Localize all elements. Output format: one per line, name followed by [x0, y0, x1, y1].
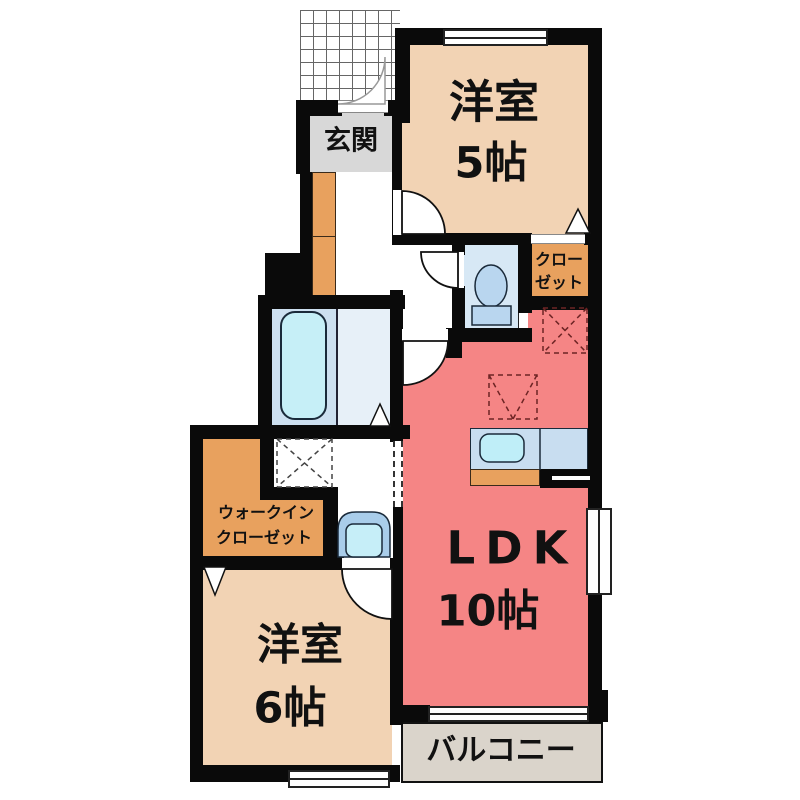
wall — [530, 296, 602, 310]
kitchen-cabinet — [470, 469, 540, 486]
balcony-label: バルコニー — [426, 736, 575, 766]
closet-label-line1: クロー — [535, 252, 583, 268]
bedroom5-size-label: 5帖 — [455, 143, 528, 186]
bedroom5-door-gap — [393, 190, 402, 235]
genkan-label: 玄関 — [324, 128, 378, 155]
wall — [390, 290, 403, 442]
bedroom6-door-gap — [342, 558, 390, 570]
bathroom-dry-floor — [337, 305, 393, 427]
wall — [446, 328, 462, 358]
wall — [190, 425, 203, 782]
wall — [258, 295, 405, 309]
ldk-name-label: LDK — [447, 526, 578, 571]
window-bedroom5 — [443, 29, 548, 46]
window-balcony — [428, 706, 589, 722]
window-ldk — [586, 508, 612, 595]
entrance-porch-hatch — [300, 10, 400, 105]
counter-edge-line — [552, 476, 590, 480]
bedroom6-size-label: 6帖 — [254, 688, 327, 731]
entrance-door-gap — [338, 100, 388, 113]
wall — [588, 690, 608, 722]
wall — [584, 233, 602, 245]
wall — [388, 558, 403, 570]
wall — [588, 28, 602, 248]
toilet-door-gap — [453, 252, 464, 288]
wall — [452, 328, 532, 342]
wall — [190, 425, 410, 439]
washing-machine-space-icon — [277, 439, 332, 487]
wic-label-line1: ウォークイン — [218, 505, 314, 521]
wall — [323, 487, 338, 563]
bedroom5-name-label: 洋室 — [449, 80, 539, 125]
bedroom6-name-label: 洋室 — [257, 625, 343, 668]
sliding-door-washroom — [393, 441, 403, 507]
ldk-door-gap — [402, 329, 448, 341]
wall — [258, 295, 272, 437]
window-bedroom6 — [288, 770, 390, 788]
wic-label-line2: クローゼット — [216, 530, 312, 546]
wall — [390, 565, 403, 725]
kitchen-counter — [470, 428, 588, 470]
bathroom-divider — [336, 305, 338, 427]
washbasin-bowl-icon — [346, 524, 382, 557]
washbasin-icon — [338, 512, 390, 557]
bathroom-floor — [270, 305, 337, 427]
wall — [392, 233, 532, 245]
ldk-size-label: 10帖 — [437, 591, 540, 634]
closet-label-line2: ゼット — [535, 275, 583, 291]
closet-door-gap — [531, 234, 585, 244]
wall — [588, 245, 602, 723]
toilet-room-floor — [463, 244, 519, 331]
shoe-cabinet-upper — [312, 172, 336, 237]
floor-plan: 玄関 洋室 5帖 クロー ゼット LDK 10帖 ウォークイン クローゼット 洋… — [0, 0, 800, 800]
wall — [296, 100, 310, 174]
wall — [403, 705, 430, 722]
wall — [190, 556, 344, 570]
shoe-cabinet-lower — [312, 236, 336, 298]
